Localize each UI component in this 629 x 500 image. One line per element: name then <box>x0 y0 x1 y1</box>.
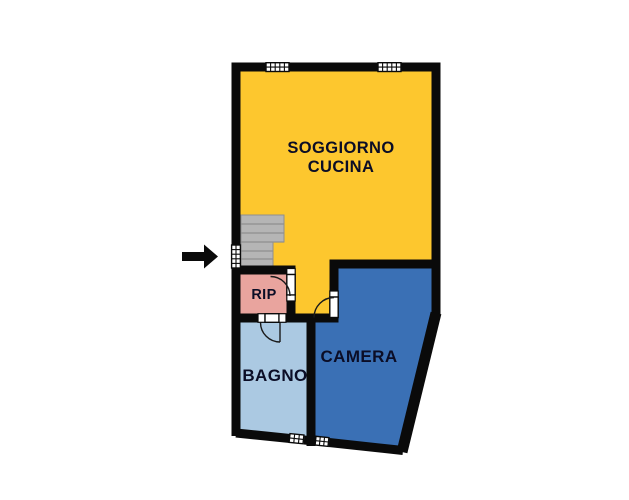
window-bottom-left-icon <box>289 434 304 444</box>
label-camera: CAMERA <box>320 347 397 366</box>
floor-plan-drawing: SOGGIORNO CUCINA RIP BAGNO CAMERA <box>0 0 629 500</box>
wall-segment <box>236 433 290 439</box>
floor-plan-canvas: SOGGIORNO CUCINA RIP BAGNO CAMERA <box>0 0 629 500</box>
window-top-right-icon <box>378 63 401 72</box>
window-bottom-right-icon <box>315 436 329 446</box>
window-top-left-icon <box>266 63 289 72</box>
label-rip: RIP <box>251 287 276 303</box>
label-soggiorno: SOGGIORNO <box>287 139 394 157</box>
entrance-arrow-icon <box>182 245 218 269</box>
entrance-door-icon <box>232 245 241 268</box>
label-bagno: BAGNO <box>242 366 307 385</box>
label-cucina: CUCINA <box>308 158 375 176</box>
